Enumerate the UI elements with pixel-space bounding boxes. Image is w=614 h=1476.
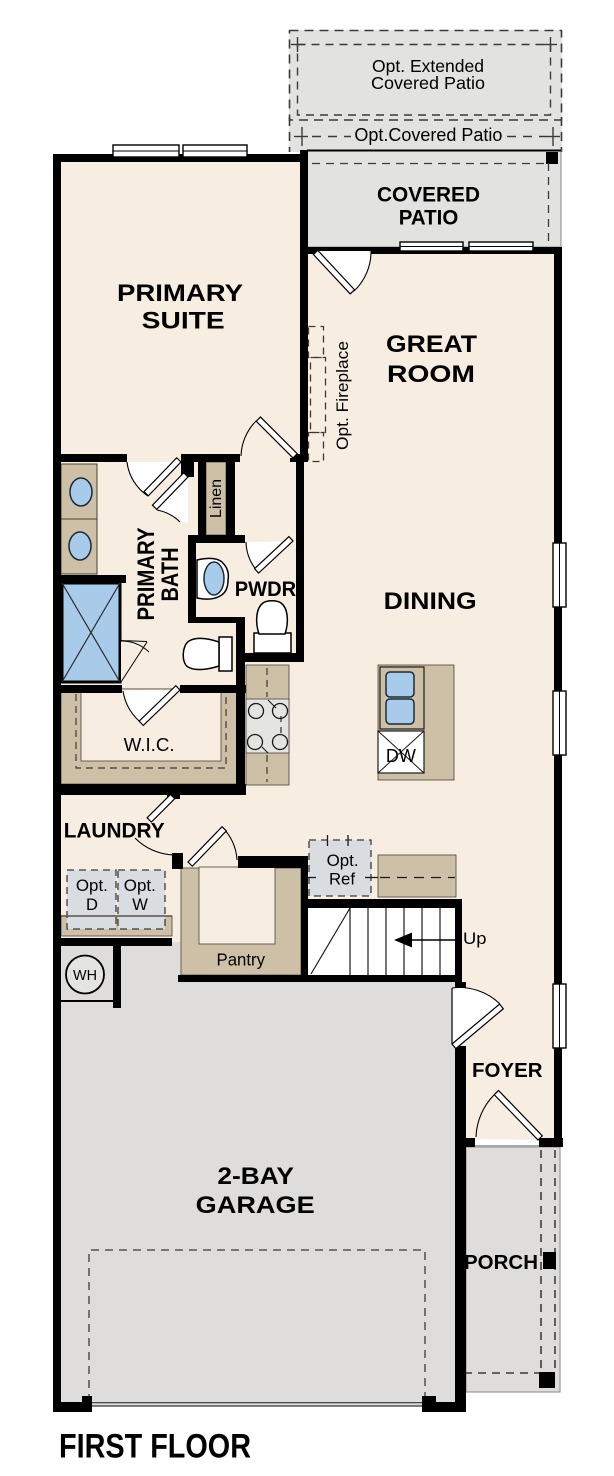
svg-text:DW: DW — [386, 746, 416, 766]
svg-text:SUITE: SUITE — [142, 308, 225, 335]
svg-text:GREAT: GREAT — [386, 331, 477, 358]
svg-text:W: W — [132, 896, 148, 914]
svg-text:PRIMARY: PRIMARY — [133, 528, 160, 621]
svg-text:PWDR: PWDR — [235, 578, 297, 601]
svg-text:2-BAY: 2-BAY — [217, 1163, 294, 1190]
svg-text:PRIMARY: PRIMARY — [117, 280, 243, 307]
svg-text:WH: WH — [73, 967, 97, 984]
svg-text:FOYER: FOYER — [472, 1059, 543, 1082]
svg-text:DINING: DINING — [384, 588, 477, 615]
svg-text:Up: Up — [463, 929, 487, 948]
svg-text:Linen: Linen — [208, 479, 225, 518]
svg-text:ROOM: ROOM — [387, 361, 475, 388]
svg-text:LAUNDRY: LAUNDRY — [64, 820, 165, 843]
svg-text:PATIO: PATIO — [399, 207, 459, 230]
svg-text:Pantry: Pantry — [217, 950, 266, 970]
svg-text:D: D — [86, 896, 98, 914]
svg-text:Opt. Fireplace: Opt. Fireplace — [334, 341, 352, 450]
svg-text:PORCH: PORCH — [464, 1251, 538, 1274]
svg-text:Opt.Covered Patio: Opt.Covered Patio — [354, 125, 502, 145]
svg-text:Opt.: Opt. — [76, 877, 108, 895]
svg-text:Covered Patio: Covered Patio — [371, 73, 485, 93]
svg-text:COVERED: COVERED — [377, 184, 480, 207]
svg-text:FIRST FLOOR: FIRST FLOOR — [59, 1428, 251, 1466]
svg-text:Ref: Ref — [329, 871, 355, 889]
svg-text:W.I.C.: W.I.C. — [124, 734, 175, 755]
svg-text:BATH: BATH — [157, 548, 184, 602]
svg-text:Opt.: Opt. — [124, 877, 156, 895]
svg-text:GARAGE: GARAGE — [196, 1192, 315, 1219]
svg-text:Opt.: Opt. — [327, 852, 359, 870]
